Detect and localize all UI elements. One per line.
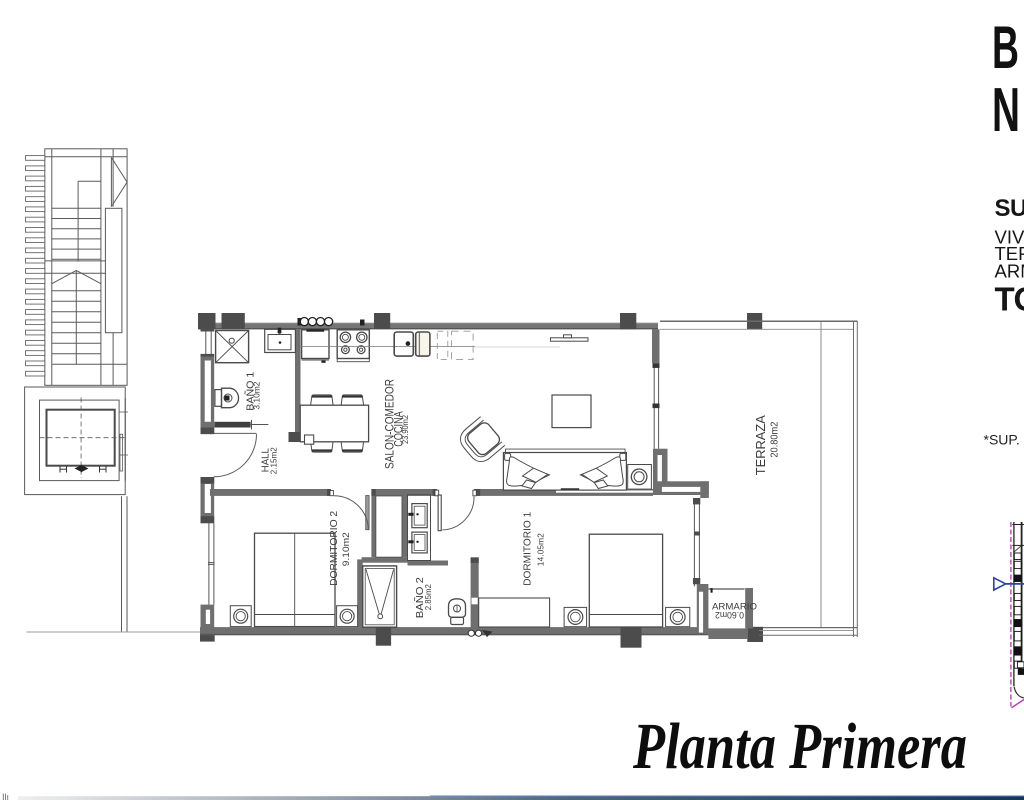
svg-text:Planta Primera: Planta Primera [632, 710, 967, 783]
svg-text:DORMITORIO 2: DORMITORIO 2 [329, 511, 340, 586]
svg-text:*SUP. CONS: *SUP. CONS [984, 432, 1024, 448]
svg-text:TERRAZA: TERRAZA [753, 415, 768, 475]
svg-text:DORMITORIO 1: DORMITORIO 1 [523, 511, 534, 585]
svg-text:14.05m2: 14.05m2 [536, 533, 546, 566]
svg-text:SUPERFICIES: SUPERFICIES [995, 195, 1024, 222]
svg-text:23.90m2: 23.90m2 [400, 415, 410, 444]
svg-text:2.15m2: 2.15m2 [269, 447, 279, 474]
svg-text:B: B [992, 14, 1019, 81]
svg-text:20.80m2: 20.80m2 [769, 422, 780, 458]
svg-text:2.85m2: 2.85m2 [423, 584, 433, 610]
svg-text:ARMARIO: ARMARIO [712, 602, 757, 612]
svg-text:TOTAL: TOTAL [995, 281, 1024, 318]
svg-text:0.60m2: 0.60m2 [715, 610, 744, 620]
svg-text:9.10m2: 9.10m2 [341, 532, 351, 566]
svg-text:ARMARIOS: ARMARIOS [995, 261, 1024, 282]
svg-text:3.10m2: 3.10m2 [252, 381, 262, 409]
svg-text:N: N [992, 76, 1020, 145]
svg-text:Ilı: Ilı [2, 792, 9, 800]
